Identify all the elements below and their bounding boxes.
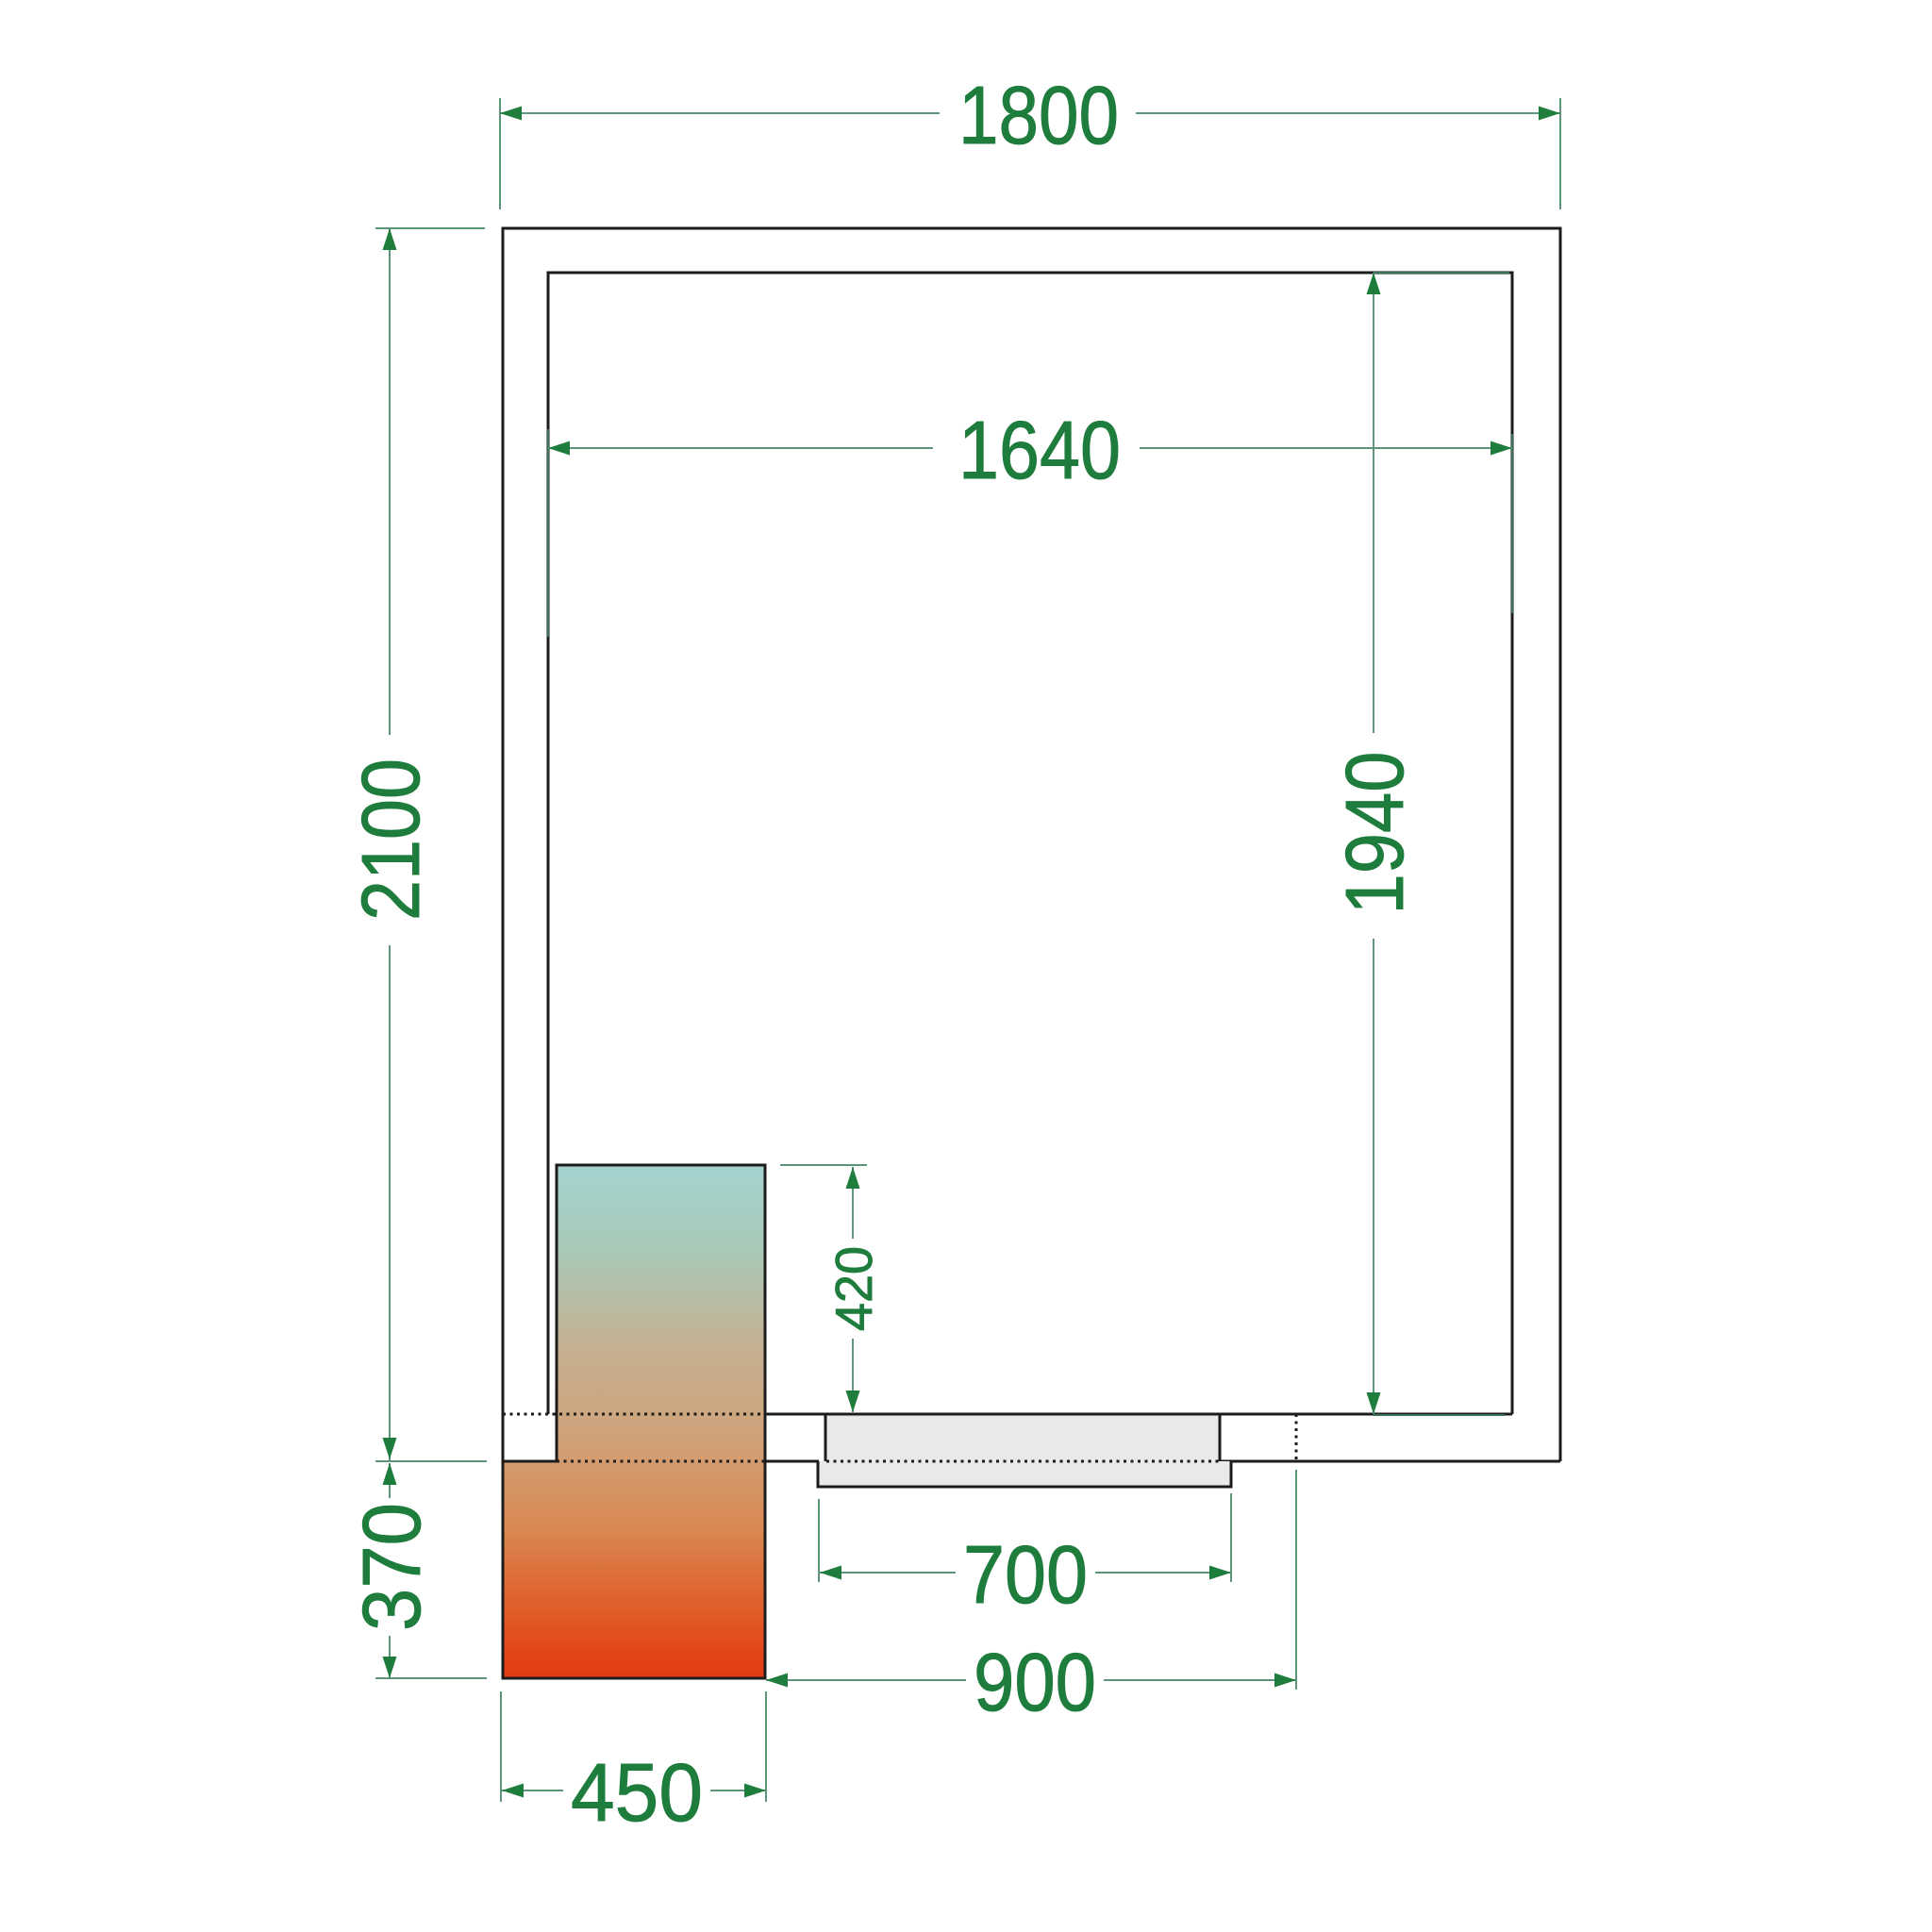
svg-text:1800: 1800 (958, 70, 1119, 161)
svg-text:450: 450 (571, 1747, 703, 1839)
svg-text:1640: 1640 (958, 405, 1121, 496)
svg-text:370: 370 (346, 1503, 438, 1631)
svg-text:900: 900 (974, 1637, 1096, 1728)
svg-text:1940: 1940 (1329, 752, 1421, 915)
svg-text:2100: 2100 (345, 758, 437, 921)
svg-text:420: 420 (824, 1246, 883, 1331)
svg-text:700: 700 (963, 1529, 1088, 1621)
